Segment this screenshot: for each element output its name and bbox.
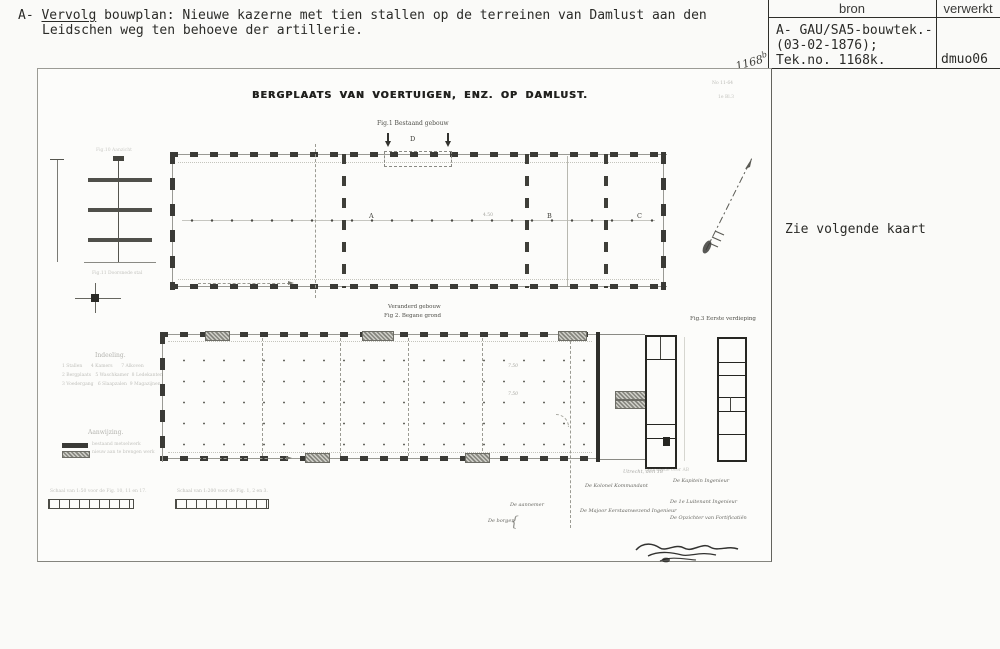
fig2-building-plan: 7.50 7.50 <box>160 332 600 462</box>
typed-header-line1: A- Vervolg bouwplan: Nieuwe kazerne met … <box>18 8 707 23</box>
detail-shelf-3 <box>88 238 152 242</box>
detail-elevation-line <box>57 160 58 262</box>
fig1-bay-line <box>567 156 568 286</box>
fig3-partition-2 <box>719 375 745 376</box>
fig2-inner-face-top <box>168 341 592 342</box>
fig1-south-wall <box>170 284 667 290</box>
detail-shelf-2 <box>88 208 152 212</box>
typed-header-line2: Leidschen weg ten behoeve der artillerie… <box>42 23 707 38</box>
fig2-door-top-3 <box>558 331 587 341</box>
detail-ground-line <box>84 262 156 263</box>
corner-ref-1: No 11-64 <box>712 81 733 86</box>
legend-indeeling-row1: 1 Stallen 4 Kamers 7 Alkoven <box>62 364 144 369</box>
legend-indeeling-row2: 2 Bergplaats 5 Waschkamer 8 Ledekanten <box>62 373 163 378</box>
wing-stair-block <box>663 437 670 446</box>
fig1-vestibule-outline <box>384 151 452 167</box>
fig2-door-top-2 <box>362 331 394 341</box>
fig2-south-wall <box>160 456 600 462</box>
official-luitenant: De 1e Luitenant Ingenieur <box>670 499 737 505</box>
fig2-door-bottom-2 <box>465 453 490 463</box>
official-opzichter: De Opzichter van Fortificatiën <box>670 515 747 521</box>
fig1-partition-1 <box>342 154 347 288</box>
scanned-archive-page: A- Vervolg bouwplan: Nieuwe kazerne met … <box>0 0 1000 649</box>
official-aannemer: De aannemer <box>510 502 544 508</box>
table-header-verwerkt: verwerkt <box>936 1 1000 16</box>
table-cell-verwerkt: dmuo06 <box>941 52 988 67</box>
legend-item-existing: bestaand metselwerk <box>92 442 141 447</box>
entrance-arrow-right <box>444 133 452 147</box>
fig1-inner-face-bottom <box>178 279 659 280</box>
fig1-label-b: B <box>547 212 552 220</box>
header-rest: bouwplan: Nieuwe kazerne met tien stalle… <box>96 8 706 23</box>
signature-scribbles <box>630 536 748 566</box>
corner-ref-2: 1e Bl.3 <box>718 95 734 100</box>
fig2-inner-face-bottom <box>168 452 592 453</box>
index-table: bron verwerkt A- GAU/SA5-bouwtek.- (03-0… <box>768 0 1000 92</box>
header-underlined-word: Vervolg <box>41 8 96 23</box>
detail-shelf-1 <box>88 178 152 182</box>
scale-right-caption: Schaal van 1:200 voor de Fig. 1, 2 en 3. <box>177 489 268 494</box>
bron-line2: (03-02-1876); <box>776 38 933 53</box>
detail-elevation-cap <box>50 159 64 160</box>
fig2-column-grid <box>174 350 588 446</box>
fig2-dimension-1: 7.50 <box>508 364 518 369</box>
fig2-east-wall <box>596 332 600 462</box>
fig1-dimension-line <box>198 283 290 284</box>
detail-post-cap <box>113 156 124 161</box>
fig2-link-top <box>600 334 645 335</box>
bron-line1: A- GAU/SA5-bouwtek.- <box>776 23 933 38</box>
fig2-dimension-line <box>198 458 288 459</box>
wing-partition-2 <box>647 424 675 425</box>
scale-left-caption: Schaal van 1:50 voor de Fig. 10, 11 en 1… <box>50 489 147 494</box>
official-majoor: De Majoor Eerstaanwezend Ingenieur <box>580 508 677 514</box>
fig2-connector-2 <box>615 400 647 409</box>
fig2-cross-wing <box>645 335 677 469</box>
entrance-arrow-left <box>384 133 392 147</box>
fig2-caption-line2: Fig 2. Begane grond <box>384 313 441 319</box>
fig2-dimension-2: 7.50 <box>508 392 518 397</box>
fig3-partition-4 <box>719 411 745 412</box>
fig1-section-line <box>315 144 316 298</box>
official-kapitein: De Kapitein Ingenieur <box>673 478 729 484</box>
fig2-bay-line-1 <box>262 338 263 456</box>
legend-verklaring-heading: Aanwijzing. <box>88 429 123 436</box>
fig2-bay-line-4 <box>482 338 483 456</box>
official-kolonel: De Kolonel Kommandant <box>585 483 648 489</box>
north-arrow <box>692 146 764 258</box>
bron-line3: Tek.no. 1168k. <box>776 53 933 68</box>
legend-indeeling-heading: Indeeling. <box>95 352 126 359</box>
table-bottom-rule <box>768 68 1000 69</box>
fig1-dimension: 4.50 <box>483 213 493 218</box>
margin-note: Zie volgende kaart <box>785 222 926 237</box>
wing-partition-3 <box>647 438 675 439</box>
fig3-partition-5 <box>719 434 745 435</box>
wing-dim-line <box>684 337 685 461</box>
legend-item-new: nieuw aan te brengen werk <box>92 450 155 455</box>
legend-swatch-new <box>62 451 90 458</box>
fig1-label-c: C <box>637 212 642 220</box>
fig2-link-bottom <box>600 459 645 460</box>
wing-divider <box>660 337 661 359</box>
official-place-date: Utrecht, den 18 <box>623 469 663 475</box>
scale-bar-left <box>48 499 134 509</box>
fig3-divider <box>730 397 731 411</box>
fig1-building-plan: A B C 4.50 <box>170 152 667 290</box>
fig2-bay-line-2 <box>340 338 341 456</box>
fig2-caption-line1: Veranderd gebouw <box>388 304 441 310</box>
legend-indeeling-row3: 3 Voedergang 6 Slaapzalen 9 Magazijnen <box>62 382 161 387</box>
fig2-door-top-1 <box>205 331 230 341</box>
header-prefix: A- <box>18 8 41 23</box>
handwritten-number-suffix: b <box>761 50 768 60</box>
fig1-partition-3 <box>604 154 609 288</box>
fig10-caption: Fig.10 Aanzicht <box>96 148 132 153</box>
fig2-axis-line <box>570 336 571 528</box>
official-borgen-brace: { <box>510 514 519 530</box>
wing-partition-1 <box>647 359 675 360</box>
fig1-caption: Fig.1 Bestaand gebouw <box>377 120 449 127</box>
fig1-east-wall <box>661 152 667 290</box>
fig2-door-bottom-1 <box>305 453 330 463</box>
detail-cross-block <box>91 294 99 302</box>
fig2-dimension-arrow <box>286 456 292 460</box>
table-header-bron: bron <box>768 1 936 16</box>
fig2-west-wall <box>160 332 166 462</box>
fig1-west-wall <box>170 152 176 290</box>
fig3-caption: Fig.3 Eerste verdieping <box>690 316 756 322</box>
fig2-bay-line-3 <box>408 338 409 456</box>
scale-bar-right <box>175 499 269 509</box>
legend-swatch-existing <box>62 443 88 448</box>
fig3-plan-strip <box>717 337 747 462</box>
typed-header: A- Vervolg bouwplan: Nieuwe kazerne met … <box>18 8 707 38</box>
fig1-partition-2 <box>525 154 530 288</box>
sheet-title: BERGPLAATS VAN VOERTUIGEN, ENZ. OP DAMLU… <box>252 90 588 101</box>
fig3-partition-3 <box>719 397 745 398</box>
fig1-column-row <box>182 218 655 223</box>
table-cell-bron: A- GAU/SA5-bouwtek.- (03-02-1876); Tek.n… <box>776 23 933 68</box>
table-header-rule <box>768 17 1000 18</box>
fig1-label-a: A <box>369 212 374 220</box>
fig1-d-label: D <box>410 135 415 143</box>
fig1-dimension-arrow <box>288 281 294 285</box>
fig11-caption: Fig.11 Doorsnede stal <box>92 271 142 276</box>
fig3-partition-1 <box>719 362 745 363</box>
